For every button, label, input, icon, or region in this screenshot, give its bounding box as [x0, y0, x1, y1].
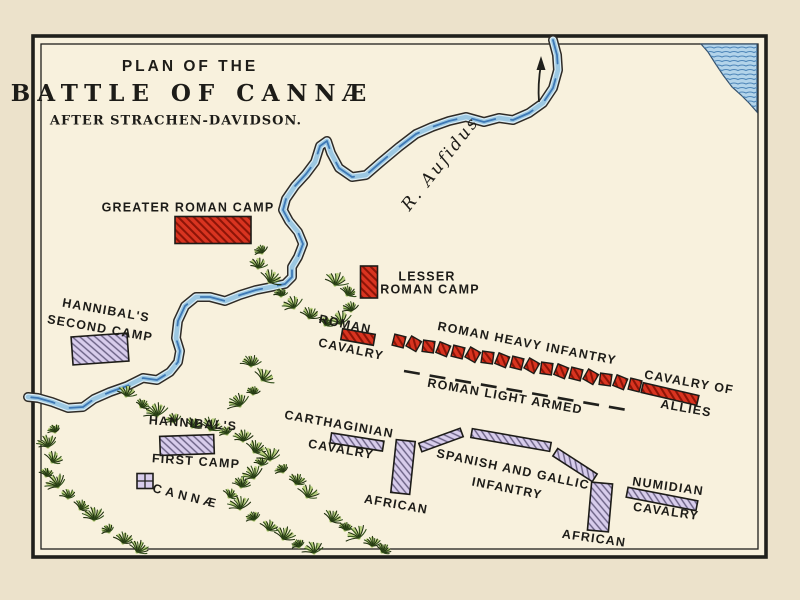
- cannae-battle-map: PLAN OF THE BATTLE OF CANNÆ AFTER STRACH…: [0, 0, 800, 600]
- roman-heavy-infantry-unit: [422, 340, 435, 353]
- roman-heavy-infantry-unit: [481, 351, 494, 364]
- label-greater-roman-camp: GREATER ROMAN CAMP: [102, 200, 275, 214]
- roman-heavy-infantry-unit: [392, 334, 406, 348]
- roman-heavy-infantry-unit: [569, 367, 583, 381]
- lesser-roman-camp-marker: [361, 266, 378, 298]
- cannae-town-marker: [137, 474, 153, 489]
- roman-heavy-infantry-unit: [599, 373, 612, 386]
- label-lesser-roman-camp-1: LESSER: [398, 269, 455, 283]
- roman-heavy-infantry-unit: [540, 362, 553, 375]
- greater-roman-camp-marker: [175, 217, 251, 244]
- map-title-line2: BATTLE OF CANNÆ: [11, 80, 374, 107]
- map-title-line3: AFTER STRACHEN-DAVIDSON.: [49, 114, 302, 129]
- roman-heavy-infantry-unit: [628, 378, 642, 392]
- african-infantry-right-marker: [587, 482, 612, 532]
- label-lesser-roman-camp-2: ROMAN CAMP: [380, 282, 480, 296]
- roman-heavy-infantry-unit: [451, 345, 465, 359]
- map-title-line1: PLAN OF THE: [122, 58, 258, 75]
- roman-heavy-infantry-unit: [510, 356, 524, 370]
